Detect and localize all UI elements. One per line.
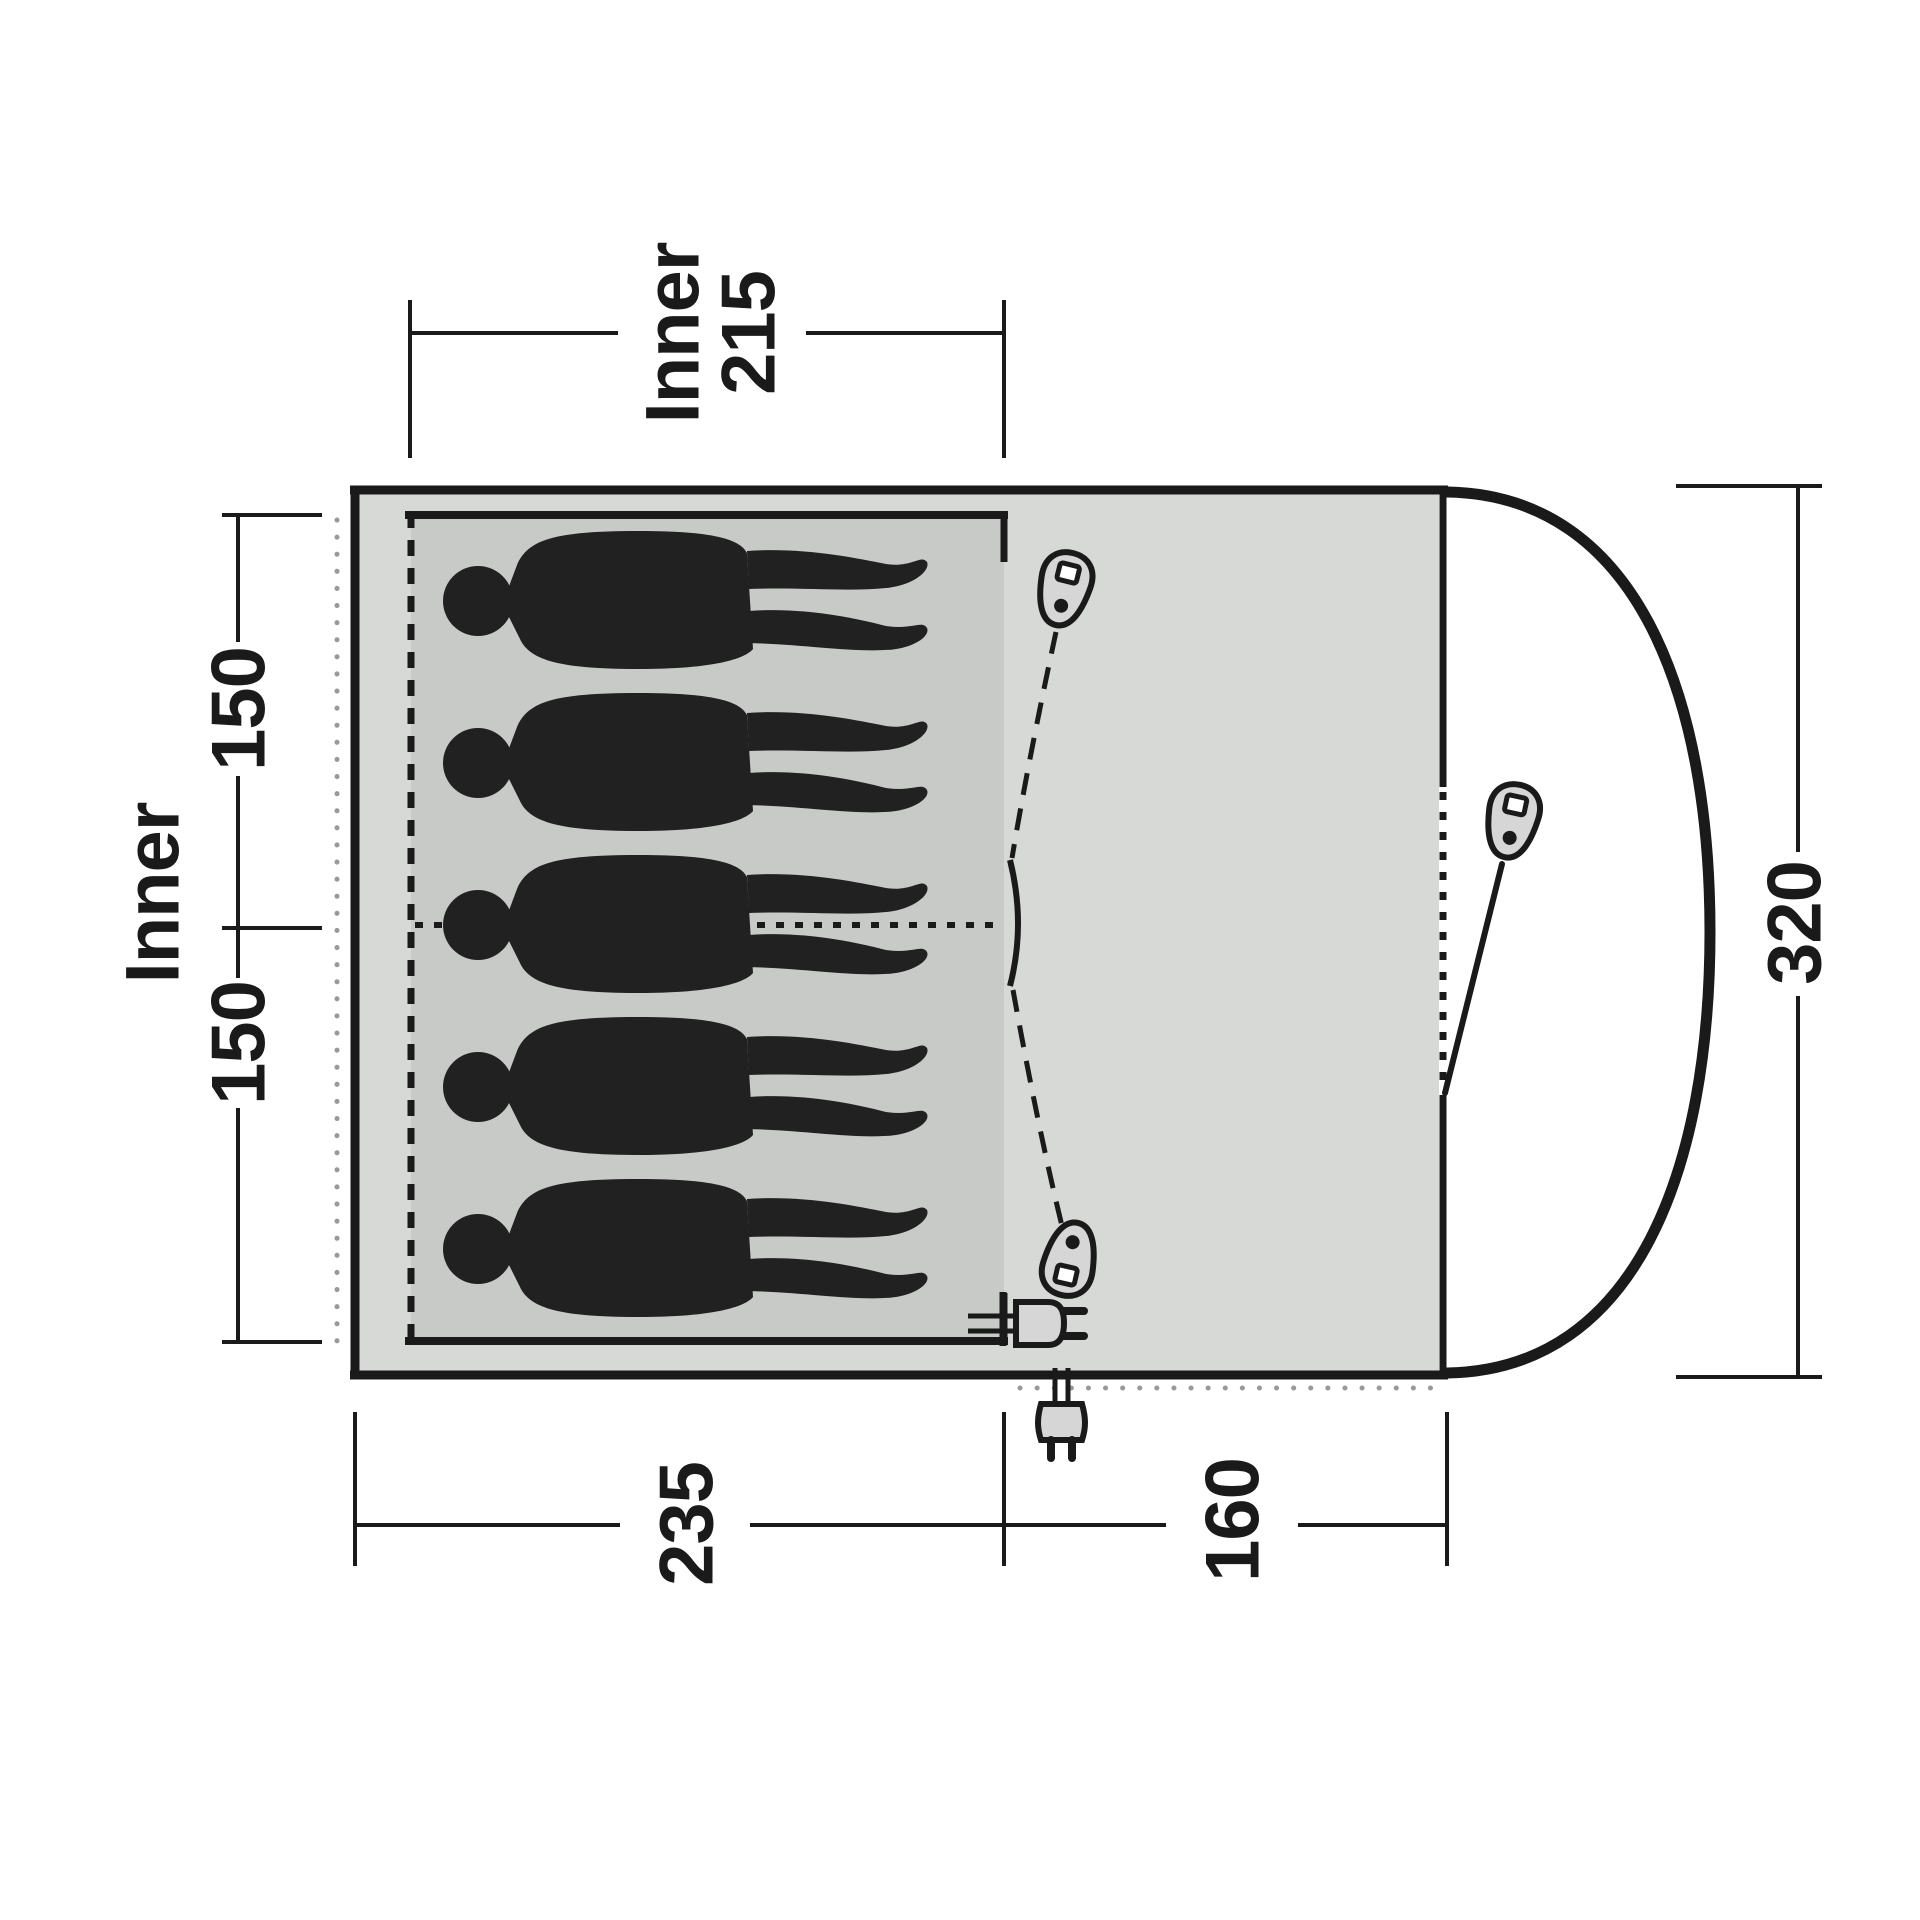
dimension-bottom-widths: 235 160 bbox=[355, 1412, 1447, 1586]
label-tent-height: 320 bbox=[1753, 861, 1838, 985]
dimension-inner-depth: Inner 150 150 bbox=[111, 515, 322, 1342]
label-inner-depth-upper: 150 bbox=[197, 647, 282, 771]
dimension-tent-height: 320 bbox=[1676, 486, 1838, 1377]
label-inner-width-value: 215 bbox=[707, 271, 792, 395]
power-plug-icon-outside bbox=[1038, 1368, 1085, 1458]
floorplan-canvas: Inner 215 Inner 150 150 320 235 160 bbox=[0, 0, 1920, 1920]
label-inner-width-word: Inner bbox=[631, 242, 716, 423]
front-door-zipper bbox=[1445, 780, 1545, 1093]
zipper-pull-icon-front-door bbox=[1480, 780, 1545, 863]
dimension-inner-width: Inner 215 bbox=[410, 242, 1004, 458]
label-bottom-left-width: 235 bbox=[645, 1462, 730, 1586]
front-door-zipper-strap bbox=[1445, 864, 1502, 1093]
label-inner-left: Inner bbox=[111, 802, 196, 983]
label-inner-depth-lower: 150 bbox=[197, 981, 282, 1105]
label-bottom-right-width: 160 bbox=[1191, 1458, 1276, 1582]
tent-floorplan-diagram: Inner 215 Inner 150 150 320 235 160 bbox=[0, 0, 1920, 1920]
